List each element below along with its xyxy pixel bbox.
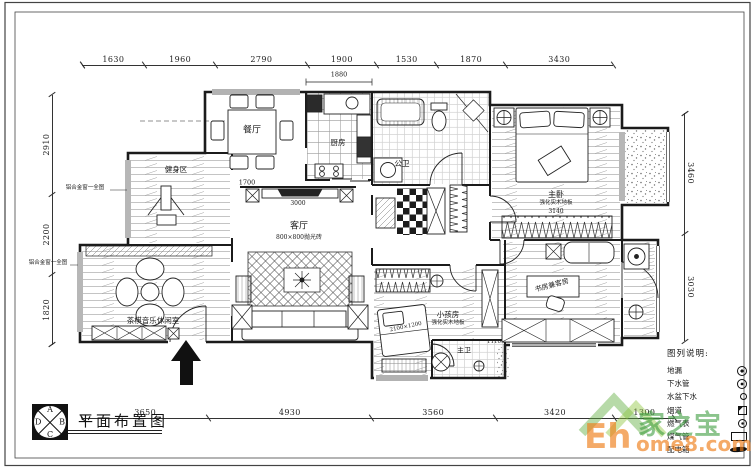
north-compass: A B C D [32, 404, 68, 440]
dimension-value: 3460 [685, 113, 695, 233]
dimension-value: 3030 [685, 233, 695, 341]
flue-icon [738, 406, 747, 415]
dim-dining-living: 1700 [239, 180, 256, 187]
room-floor-kids: 强化实木地板 [431, 321, 464, 327]
dimension-value: 3430 [505, 55, 613, 65]
legend-item-label: 煤气管 [667, 431, 690, 442]
dimension-chain-left: 182022002910 [40, 95, 53, 345]
window-note-1: 铝合金窗一全图 [66, 186, 105, 192]
drawing-title: 平面布置图 [78, 410, 168, 431]
dimension-chain-right: 34603030 [684, 113, 697, 341]
dimension-value: 3420 [495, 408, 615, 418]
legend-item: 下水管 [667, 377, 747, 390]
room-floor-living: 800×800抛光砖 [276, 235, 322, 241]
legend-item-label: 水盆下水 [667, 391, 697, 402]
legend: 图列说明: 地漏下水管水盆下水烟道燃气表煤气管配电箱 [667, 347, 747, 456]
legend-item: 水盆下水 [667, 390, 747, 403]
compass-letter-d: D [35, 418, 41, 427]
basin-drain-icon [740, 393, 747, 400]
legend-item-label: 烟道 [667, 405, 682, 416]
legend-item-label: 配电箱 [667, 444, 690, 455]
gas-meter-icon [738, 419, 747, 428]
legend-item-label: 燃气表 [667, 418, 690, 429]
dimension-value: 2910 [42, 95, 52, 194]
dimension-chain-top: 1630196027901900153018703430 [82, 53, 613, 66]
room-floor-master-bed: 强化实木地板 [539, 201, 572, 207]
room-label-fitness: 健身区 [165, 166, 188, 174]
room-label-guest-bath: 公卫 [395, 160, 410, 168]
dimension-value: 1300 [615, 408, 674, 418]
legend-item-label: 下水管 [667, 378, 690, 389]
power-box-icon [730, 447, 747, 453]
legend-item-label: 地漏 [667, 365, 682, 376]
room-label-kitchen: 厨房 [331, 139, 346, 147]
compass-letter-c: C [47, 430, 53, 439]
dimension-value: 1820 [42, 275, 52, 345]
room-label-master-bed: 主卧 [548, 191, 564, 199]
floor-drain-icon [737, 366, 747, 376]
dimension-value: 1630 [82, 55, 145, 65]
dimension-value: 4930 [208, 408, 371, 418]
dim-bath-door: 1110 [487, 340, 501, 346]
compass-letter-a: A [47, 405, 53, 414]
room-label-living: 客厅 [290, 222, 308, 231]
floor-plan-sheet: 餐厅 厨房 健身区 茶棋音乐休闲室 客厅 800×800抛光砖 公卫 主卧 强化… [0, 0, 755, 469]
dim-tv-wall: 3000 [290, 201, 305, 207]
title-underline [68, 430, 162, 431]
dim-kitchen-top: 1880 [331, 72, 348, 79]
room-label-leisure: 茶棋音乐休闲室 [127, 317, 180, 325]
legend-item: 地漏 [667, 364, 747, 377]
legend-item: 烟道 [667, 404, 747, 417]
legend-item: 煤气管 [667, 430, 747, 443]
legend-item: 燃气表 [667, 417, 747, 430]
dimension-value: 1530 [377, 55, 437, 65]
dimension-chain-bottom: 36504930356034201300 [82, 406, 674, 419]
dimension-value: 2790 [216, 55, 308, 65]
floor-plan-drawing [0, 0, 755, 469]
drain-pipe-icon [737, 379, 747, 389]
dimension-value: 1960 [145, 55, 216, 65]
gas-pipe-icon [731, 432, 747, 441]
dim-master-bed: 3140 [548, 208, 563, 214]
dimension-value: 3560 [371, 408, 495, 418]
legend-item: 配电箱 [667, 443, 747, 456]
dimension-value: 1870 [437, 55, 506, 65]
legend-title: 图列说明: [667, 347, 747, 359]
window-note-2: 铝合金窗一全图 [29, 261, 68, 267]
room-label-kids: 小孩房 [437, 311, 460, 319]
room-label-master-bath: 主卫 [457, 347, 471, 354]
compass-letter-b: B [59, 418, 65, 427]
dimension-value: 1900 [307, 55, 376, 65]
room-label-dining: 餐厅 [243, 126, 261, 135]
title-underline-2 [68, 433, 162, 434]
